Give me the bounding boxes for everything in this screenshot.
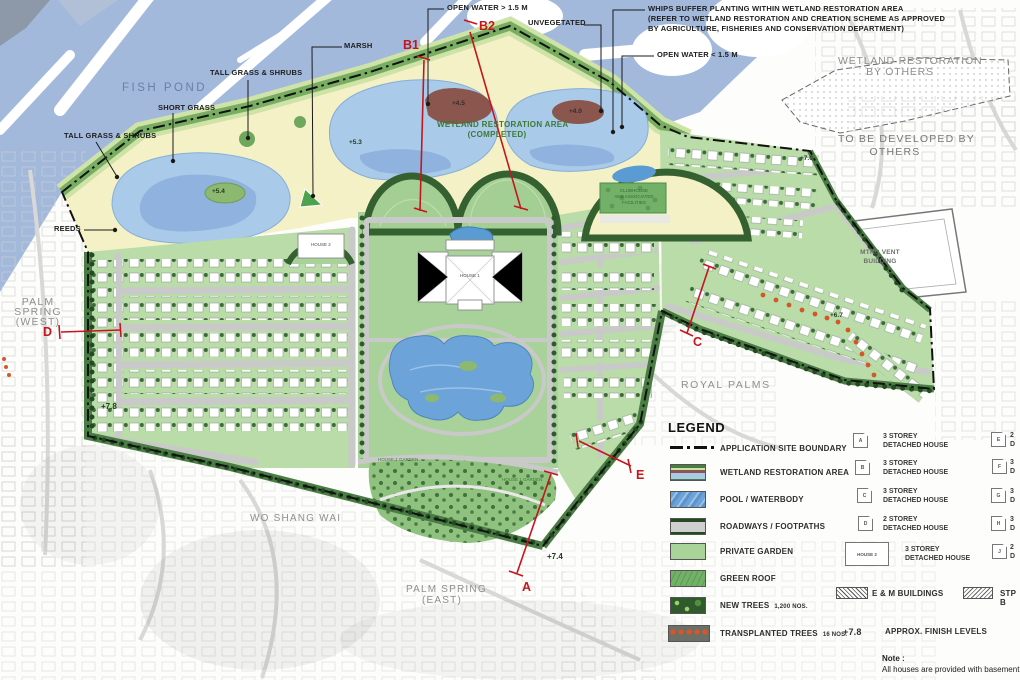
house-type-symbol-b: B — [855, 460, 870, 475]
house-type-line1: 3 STOREY — [905, 546, 970, 555]
house-type-letter: E — [997, 437, 1000, 443]
spot-level: +4.0 — [569, 108, 582, 115]
legend-item-text: NEW TREES — [720, 601, 769, 610]
label-mtrc-1: MTRC VENT — [852, 249, 908, 256]
house-type-letter: J — [998, 549, 1001, 555]
label-palm-spring-east-2: (EAST) — [406, 595, 478, 606]
label-mtrc-2: BUILDING — [852, 258, 908, 265]
spot-level: +7.8 — [101, 402, 117, 411]
label-clubhouse-2: AND ASSOCIATED — [605, 194, 663, 199]
house-type-line2: D — [1010, 441, 1015, 450]
residential-west — [88, 227, 355, 468]
label-wetland-completed-1: WETLAND RESTORATION AREA — [437, 120, 557, 129]
label-to-be-developed-1: TO BE DEVELOPED BY — [838, 133, 952, 145]
legend-item-label: ROADWAYS / FOOTPATHS — [720, 522, 825, 531]
label-marsh: MARSH — [344, 41, 373, 50]
house-type-letter: G — [997, 493, 1001, 499]
house-type-label: 3 STOREYDETACHED HOUSE — [905, 546, 970, 563]
legend-item-text: TRANSPLANTED TREES — [720, 629, 818, 638]
house-type-line2: D — [1010, 553, 1015, 562]
label-clubhouse-1: CLUBHOUSE — [605, 188, 663, 193]
legend-transplanted-swatch — [668, 625, 710, 642]
legend-item-qty: 1,200 NOS. — [774, 604, 807, 610]
legend-item-label: APPLICATION SITE BOUNDARY — [720, 444, 847, 453]
spot-level: +7.4 — [547, 552, 563, 561]
label-palm-spring-east-1: PALM SPRING — [406, 584, 478, 595]
house-type-symbol-g: G — [991, 488, 1006, 503]
legend-item-label: NEW TREES1,200 NOS. — [720, 601, 808, 610]
label-whips-3: BY AGRICULTURE, FISHERIES AND CONSERVATI… — [648, 24, 904, 33]
label-wo-shang-wai: WO SHANG WAI — [250, 513, 341, 524]
label-open-water-shallow: OPEN WATER < 1.5 M — [657, 50, 738, 59]
house-type-line2: DETACHED HOUSE — [883, 497, 948, 506]
label-unvegetated: UNVEGETATED — [528, 18, 586, 27]
label-tall-grass-left: TALL GRASS & SHRUBS — [64, 131, 156, 140]
house-type-symbol-e: E — [991, 432, 1006, 447]
legend-finish-symbol: +7.8 — [843, 627, 862, 637]
house-type-label-clipped: 3D — [1010, 459, 1015, 476]
house-type-symbol-h: H — [991, 516, 1006, 531]
label-tall-grass-top: TALL GRASS & SHRUBS — [210, 68, 302, 77]
legend-new-trees-swatch — [670, 597, 706, 614]
legend-item-label: TRANSPLANTED TREES16 NOS. — [720, 629, 847, 638]
legend-title: LEGEND — [668, 420, 725, 435]
note-heading: Note : — [882, 654, 905, 663]
label-wetland-completed-2: (COMPLETED) — [437, 130, 557, 139]
house-type-line2: DETACHED HOUSE — [883, 469, 948, 478]
legend-boundary-symbol — [670, 446, 716, 449]
legend-pool-swatch — [670, 491, 706, 508]
house-type-letter: HOUSE 2 — [857, 552, 877, 557]
house-type-letter: F — [998, 464, 1001, 470]
house-type-line1: 2 — [1010, 432, 1015, 441]
house-type-symbol-house2: HOUSE 2 — [845, 542, 889, 566]
site-plan-drawing — [0, 0, 1020, 680]
legend-green-roof-swatch — [670, 570, 706, 587]
house-type-label: 2 STOREYDETACHED HOUSE — [883, 516, 948, 533]
house-type-letter: B — [861, 465, 865, 471]
section-label-d: D — [43, 325, 52, 339]
spot-level: +7.0 — [800, 155, 813, 162]
house-type-symbol-c: C — [857, 488, 872, 503]
house-type-line1: 3 — [1010, 516, 1015, 525]
house-type-symbol-j: J — [992, 544, 1007, 559]
legend-private-garden-swatch — [670, 543, 706, 560]
spot-level: +4.5 — [452, 100, 465, 107]
central-estate — [358, 174, 558, 468]
spot-level: +5.4 — [212, 188, 225, 195]
legend-em-label: E & M BUILDINGS — [872, 589, 943, 598]
legend-item-label: POOL / WATERBODY — [720, 495, 804, 504]
section-label-c: C — [693, 335, 702, 349]
house-type-letter: H — [997, 521, 1001, 527]
label-palm-spring-west-3: (WEST) — [6, 316, 70, 328]
house-type-line2: DETACHED HOUSE — [883, 442, 948, 451]
house-type-line1: 2 — [1010, 544, 1015, 553]
house-type-symbol-a: A — [853, 433, 868, 448]
note-body: All houses are provided with basement c — [882, 665, 1020, 674]
label-open-water-deep: OPEN WATER > 1.5 M — [447, 3, 528, 12]
label-to-be-developed-2: OTHERS — [838, 146, 952, 158]
section-label-b2: B2 — [479, 19, 495, 33]
spot-level: +6.7 — [830, 312, 843, 319]
house-type-letter: C — [863, 493, 867, 499]
legend-wetland-swatch — [670, 464, 706, 481]
section-label-b1: B1 — [403, 38, 419, 52]
house-type-label-clipped: 3D — [1010, 516, 1015, 533]
label-house-1-garden-a: HOUSE 1 GARDEN — [378, 457, 418, 462]
house-type-line2: D — [1010, 525, 1015, 534]
house-type-label-clipped: 3D — [1010, 488, 1015, 505]
house-type-line2: D — [1010, 497, 1015, 506]
site-plan-page: OPEN WATER > 1.5 M B2 UNVEGETATED B1 WHI… — [0, 0, 1020, 680]
island-west — [205, 183, 245, 203]
label-whips-2: (REFER TO WETLAND RESTORATION AND CREATI… — [648, 14, 945, 23]
house-type-line1: 2 STOREY — [883, 516, 948, 525]
label-house-1: HOUSE 1 — [460, 273, 480, 278]
label-whips-1: WHIPS BUFFER PLANTING WITHIN WETLAND RES… — [648, 4, 903, 13]
house-type-line2: DETACHED HOUSE — [905, 555, 970, 564]
house-type-letter: A — [859, 438, 863, 444]
house-type-letter: D — [864, 521, 868, 527]
label-fish-pond: FISH POND — [122, 82, 207, 94]
house-type-line1: 3 — [1010, 488, 1015, 497]
legend-finish-label: APPROX. FINISH LEVELS — [885, 627, 987, 636]
legend-item-label: PRIVATE GARDEN — [720, 547, 793, 556]
house-type-line1: 3 STOREY — [883, 488, 948, 497]
label-royal-palms: ROYAL PALMS — [681, 379, 771, 391]
legend-stp-swatch — [963, 587, 993, 599]
house-type-label: 3 STOREYDETACHED HOUSE — [883, 488, 948, 505]
label-house-1-garden-b: HOUSE 1 GARDEN — [502, 477, 542, 482]
label-wetland-by-others-2: BY OTHERS — [838, 66, 962, 78]
section-label-a: A — [522, 580, 531, 594]
house-type-line1: 3 — [1010, 459, 1015, 468]
label-clubhouse-3: FACILITIES — [605, 200, 663, 205]
legend-em-swatch — [836, 587, 868, 599]
house-type-line1: 3 STOREY — [883, 460, 948, 469]
house-type-line1: 3 STOREY — [883, 433, 948, 442]
house-type-symbol-f: F — [992, 459, 1007, 474]
legend-item-label: GREEN ROOF — [720, 574, 776, 583]
house-type-label-clipped: 2D — [1010, 544, 1015, 561]
section-label-e: E — [636, 468, 644, 482]
house-type-label: 3 STOREYDETACHED HOUSE — [883, 460, 948, 477]
legend-stp-label: STP B — [1000, 589, 1020, 607]
label-short-grass: SHORT GRASS — [158, 103, 215, 112]
house-type-symbol-d: D — [858, 516, 873, 531]
house-type-line2: DETACHED HOUSE — [883, 525, 948, 534]
house-type-line2: D — [1010, 468, 1015, 477]
label-reeds: REEDS — [54, 224, 81, 233]
house-type-label-clipped: 2D — [1010, 432, 1015, 449]
legend-roadways-swatch — [670, 518, 706, 535]
label-house-2: HOUSE 2 — [311, 242, 331, 247]
house-type-label: 3 STOREYDETACHED HOUSE — [883, 433, 948, 450]
legend-item-label: WETLAND RESTORATION AREA — [720, 468, 849, 477]
spot-level: +5.3 — [349, 139, 362, 146]
